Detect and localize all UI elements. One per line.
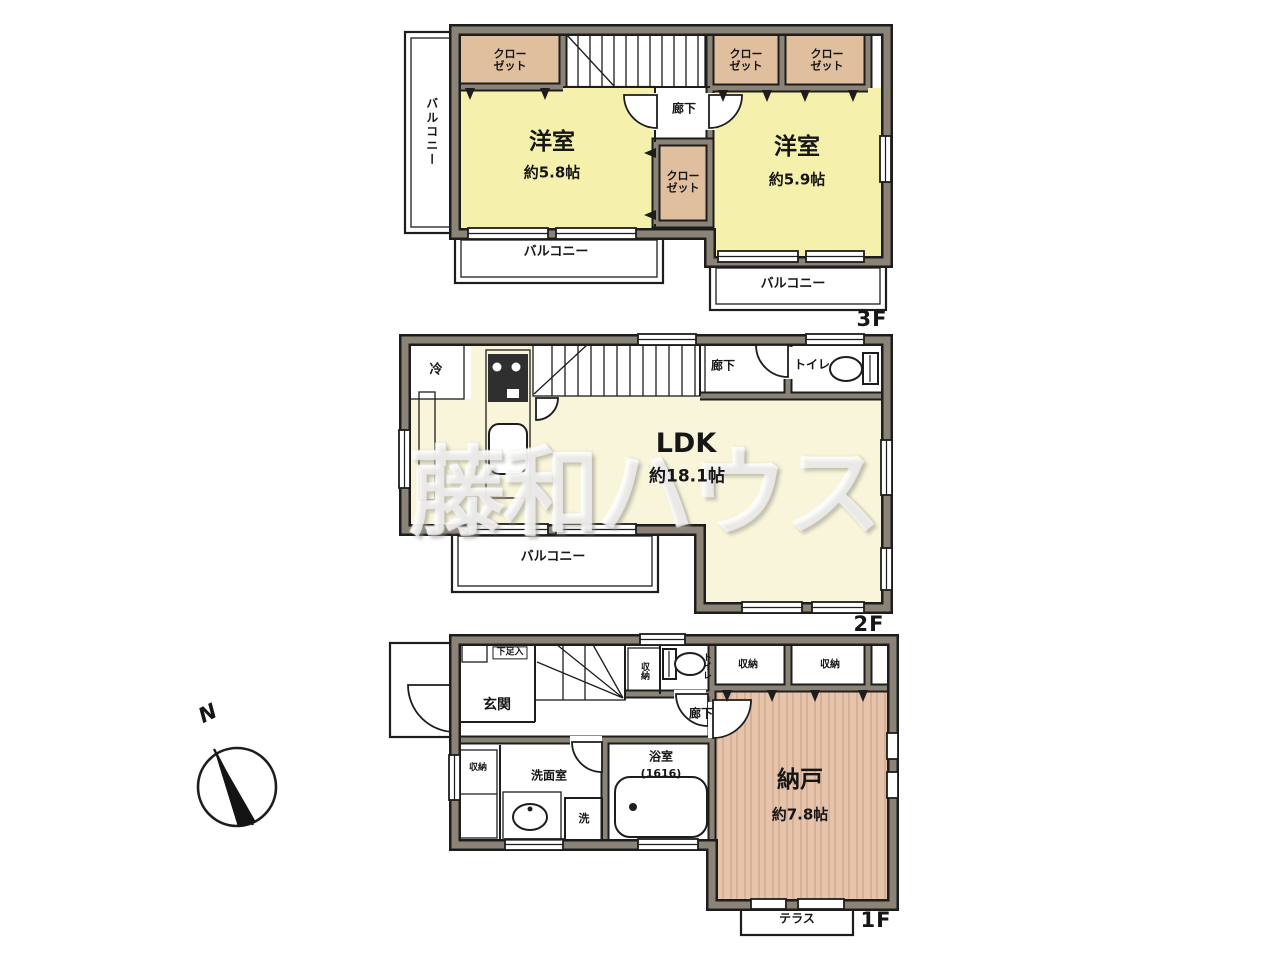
balcony-br-label-3f: バルコニー — [761, 278, 826, 293]
bath-size-1f: (1616) — [641, 768, 682, 780]
storage1-label-1f: 収納 — [738, 659, 758, 670]
storage2-label-1f: 収納 — [820, 659, 840, 670]
floorplan-drawing — [0, 0, 1280, 960]
floor-label-2f: 2F — [854, 613, 885, 637]
floor-2f — [399, 334, 892, 613]
toilet-label-1f: トイレ — [701, 653, 711, 680]
closet-tr2-label-3f: クロー ゼット — [811, 49, 844, 74]
hallway-label-2f: 廊下 — [711, 359, 735, 372]
room-west-3f — [455, 85, 655, 234]
balcony-left-label-3f: バルコニー — [424, 97, 437, 167]
fridge-label-2f: 冷 — [429, 364, 442, 379]
washroom-label-1f: 洗面室 — [531, 769, 567, 782]
floor-label-1f: 1F — [861, 909, 892, 933]
closet-tr1-label-3f: クロー ゼット — [730, 49, 763, 74]
balcony-bl-label-3f: バルコニー — [524, 246, 589, 261]
bath-name-1f: 浴室 — [649, 750, 673, 763]
washbasin-icon — [503, 792, 561, 840]
door-washroom-1f — [572, 742, 602, 772]
floor-label-3f: 3F — [857, 308, 888, 332]
stairs-1f — [535, 643, 625, 700]
room-east-name-3f: 洋室 — [774, 135, 820, 161]
entrance-label-1f: 玄関 — [483, 698, 511, 714]
washer-label-1f: 洗 — [579, 813, 590, 825]
balcony-label-2f: バルコニー — [521, 551, 586, 566]
stairs-3f — [565, 32, 705, 87]
shoe-box-label-1f: 下足入 — [492, 646, 527, 659]
storeroom-size-1f: 約7.8帖 — [772, 807, 829, 824]
storeroom-name-1f: 納戸 — [777, 768, 823, 794]
closet-mid-label-3f: クロー ゼット — [667, 171, 700, 196]
floorplan-page: クロー ゼット クロー ゼット クロー ゼット クロー ゼット 廊下 洋室 約5… — [0, 0, 1280, 960]
hallway-label-3f: 廊下 — [672, 102, 696, 115]
compass-icon — [198, 748, 276, 827]
room-west-name-3f: 洋室 — [529, 130, 575, 156]
ldk-name: LDK — [656, 429, 717, 459]
toilet-icon-1f — [663, 649, 705, 679]
bathtub-icon — [615, 777, 707, 837]
toilet-label-2f: トイレ — [794, 358, 830, 371]
sink-icon — [489, 424, 527, 474]
ldk-size: 約18.1帖 — [649, 467, 725, 486]
closet-bl-label-1f: 収納 — [469, 763, 487, 773]
hallway-label-1f: 廊下 — [689, 707, 713, 720]
room-east-size-3f: 約5.9帖 — [769, 172, 826, 189]
stair-storage-label-1f: 収納 — [639, 662, 649, 680]
shoe-cabinet-1f — [462, 645, 487, 662]
room-west-size-3f: 約5.8帖 — [524, 165, 581, 182]
closet-tl-label-3f: クロー ゼット — [494, 49, 527, 74]
terrace-label-1f: テラス — [779, 912, 815, 925]
